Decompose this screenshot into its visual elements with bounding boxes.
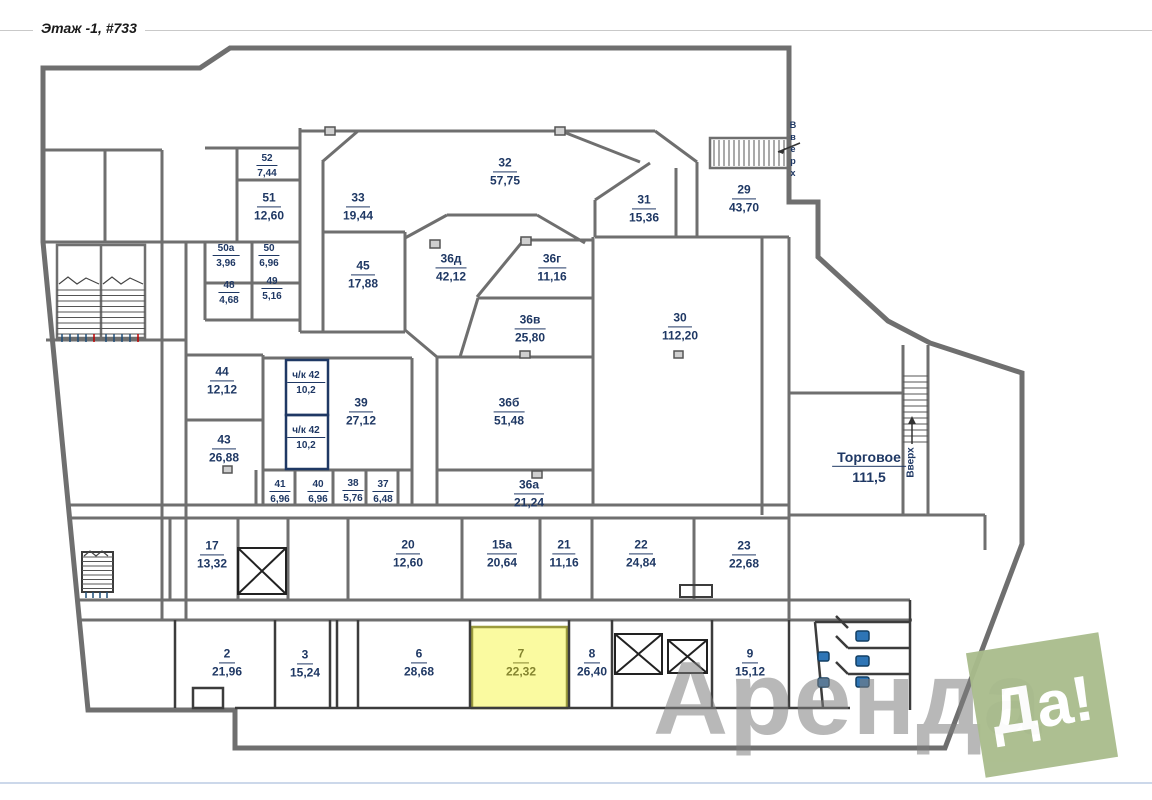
room-area: 51,48 [494, 412, 525, 429]
room-label-36г[interactable]: 36г11,16 [537, 251, 566, 284]
room-area: 22,32 [506, 663, 536, 680]
room-label-7[interactable]: 722,32 [506, 646, 536, 679]
room-area: 6,96 [269, 492, 290, 506]
room-label-15а[interactable]: 15а20,64 [487, 537, 517, 570]
room-area: 6,48 [372, 492, 393, 506]
room-area: 43,70 [729, 199, 759, 216]
room-number: 31 [632, 192, 655, 209]
room-area: 24,84 [626, 554, 656, 571]
room-area: 10,2 [287, 438, 325, 452]
room-area: 21,24 [514, 494, 544, 511]
room-label-32[interactable]: 3257,75 [490, 155, 520, 188]
room-label-31[interactable]: 3115,36 [629, 192, 659, 225]
room-area: 4,68 [218, 293, 239, 307]
room-number: Торговое [832, 448, 906, 467]
room-area: 5,16 [261, 289, 282, 303]
room-area: 17,88 [348, 275, 378, 292]
room-area: 21,96 [212, 663, 242, 680]
stairs-up-label-top: Вверх [788, 120, 798, 180]
room-number: 29 [732, 182, 755, 199]
room-number: 17 [200, 538, 223, 555]
room-label-52[interactable]: 527,44 [256, 152, 277, 180]
room-number: 48 [218, 279, 239, 293]
room-number: 15а [487, 537, 517, 554]
room-area: 10,2 [287, 383, 325, 397]
room-label-50[interactable]: 506,96 [258, 242, 279, 270]
room-area: 25,80 [515, 329, 546, 346]
room-label-ч-к-42[interactable]: ч/к 4210,2 [287, 424, 325, 452]
room-label-3[interactable]: 315,24 [290, 647, 320, 680]
room-label-49[interactable]: 495,16 [261, 275, 282, 303]
room-number: 39 [349, 395, 372, 412]
room-label-33[interactable]: 3319,44 [343, 190, 373, 223]
room-area: 11,16 [537, 268, 566, 285]
room-label-37[interactable]: 376,48 [372, 478, 393, 506]
room-label-23[interactable]: 2322,68 [729, 538, 759, 571]
room-number: 2 [219, 646, 236, 663]
room-number: 51 [257, 190, 280, 207]
room-label-29[interactable]: 2943,70 [729, 182, 759, 215]
watermark-badge: Да! [966, 632, 1118, 777]
room-number: 40 [307, 478, 328, 492]
room-area: 6,96 [307, 492, 328, 506]
room-number: ч/к 42 [287, 369, 325, 383]
room-label-17[interactable]: 1713,32 [197, 538, 227, 571]
room-area: 57,75 [490, 172, 520, 189]
room-label-30[interactable]: 30112,20 [662, 310, 698, 343]
room-area: 13,32 [197, 555, 227, 572]
room-number: 52 [256, 152, 277, 166]
room-number: 21 [552, 537, 575, 554]
room-number: 44 [210, 364, 233, 381]
room-number: 36б [494, 395, 525, 412]
room-area: 12,12 [207, 381, 237, 398]
room-label-44[interactable]: 4412,12 [207, 364, 237, 397]
room-area: 20,64 [487, 554, 517, 571]
room-number: 3 [297, 647, 314, 664]
room-area: 7,44 [256, 166, 277, 180]
room-number: 45 [351, 258, 374, 275]
room-number: 50а [213, 242, 240, 256]
room-area: 26,40 [577, 663, 607, 680]
room-label-Торговое[interactable]: Торговое111,5 [832, 448, 906, 486]
room-label-41[interactable]: 416,96 [269, 478, 290, 506]
room-label-8[interactable]: 826,40 [577, 646, 607, 679]
room-label-6[interactable]: 628,68 [404, 646, 434, 679]
room-label-43[interactable]: 4326,88 [209, 432, 239, 465]
room-label-ч-к-42[interactable]: ч/к 4210,2 [287, 369, 325, 397]
room-number: 36в [515, 312, 546, 329]
room-label-36а[interactable]: 36а21,24 [514, 477, 544, 510]
room-label-22[interactable]: 2224,84 [626, 537, 656, 570]
room-label-51[interactable]: 5112,60 [254, 190, 284, 223]
room-label-39[interactable]: 3927,12 [346, 395, 376, 428]
room-number: 23 [732, 538, 755, 555]
room-label-21[interactable]: 2111,16 [549, 537, 578, 570]
stairs-up-label-right: Вверх [906, 433, 919, 493]
room-area: 15,36 [629, 209, 659, 226]
room-number: 20 [396, 537, 419, 554]
room-number: 33 [346, 190, 369, 207]
room-label-36б[interactable]: 36б51,48 [494, 395, 525, 428]
room-number: 30 [668, 310, 691, 327]
room-number: 41 [269, 478, 290, 492]
room-area: 28,68 [404, 663, 434, 680]
room-number: 36а [514, 477, 544, 494]
room-area: 26,88 [209, 449, 239, 466]
room-number: 6 [411, 646, 428, 663]
room-area: 6,96 [258, 256, 279, 270]
room-label-36д[interactable]: 36д42,12 [436, 251, 467, 284]
room-label-38[interactable]: 385,76 [342, 477, 363, 505]
room-label-48[interactable]: 484,68 [218, 279, 239, 307]
room-area: 27,12 [346, 412, 376, 429]
room-label-2[interactable]: 221,96 [212, 646, 242, 679]
floor-plan-page: Этаж -1, #733 [0, 0, 1152, 800]
room-number: 7 [513, 646, 530, 663]
room-area: 111,5 [832, 467, 906, 486]
room-number: 32 [493, 155, 516, 172]
room-area: 22,68 [729, 555, 759, 572]
room-number: 8 [584, 646, 601, 663]
room-number: 36г [538, 251, 566, 268]
room-label-20[interactable]: 2012,60 [393, 537, 423, 570]
room-number: 38 [342, 477, 363, 491]
room-label-36в[interactable]: 36в25,80 [515, 312, 546, 345]
room-area: 12,60 [254, 207, 284, 224]
room-number: 50 [258, 242, 279, 256]
room-area: 12,60 [393, 554, 423, 571]
room-area: 42,12 [436, 268, 467, 285]
room-area: 19,44 [343, 207, 373, 224]
room-number: ч/к 42 [287, 424, 325, 438]
page-title: Этаж -1, #733 [33, 20, 145, 36]
room-number: 49 [261, 275, 282, 289]
room-area: 11,16 [549, 554, 578, 571]
room-number: 37 [372, 478, 393, 492]
room-area: 5,76 [342, 491, 363, 505]
room-area: 112,20 [662, 327, 698, 344]
room-label-50а[interactable]: 50а3,96 [213, 242, 240, 270]
watermark-badge-text: Да! [986, 665, 1097, 744]
room-area: 3,96 [213, 256, 240, 270]
room-number: 36д [436, 251, 467, 268]
room-area: 15,24 [290, 664, 320, 681]
room-number: 22 [629, 537, 652, 554]
room-number: 43 [212, 432, 235, 449]
room-label-45[interactable]: 4517,88 [348, 258, 378, 291]
room-label-40[interactable]: 406,96 [307, 478, 328, 506]
